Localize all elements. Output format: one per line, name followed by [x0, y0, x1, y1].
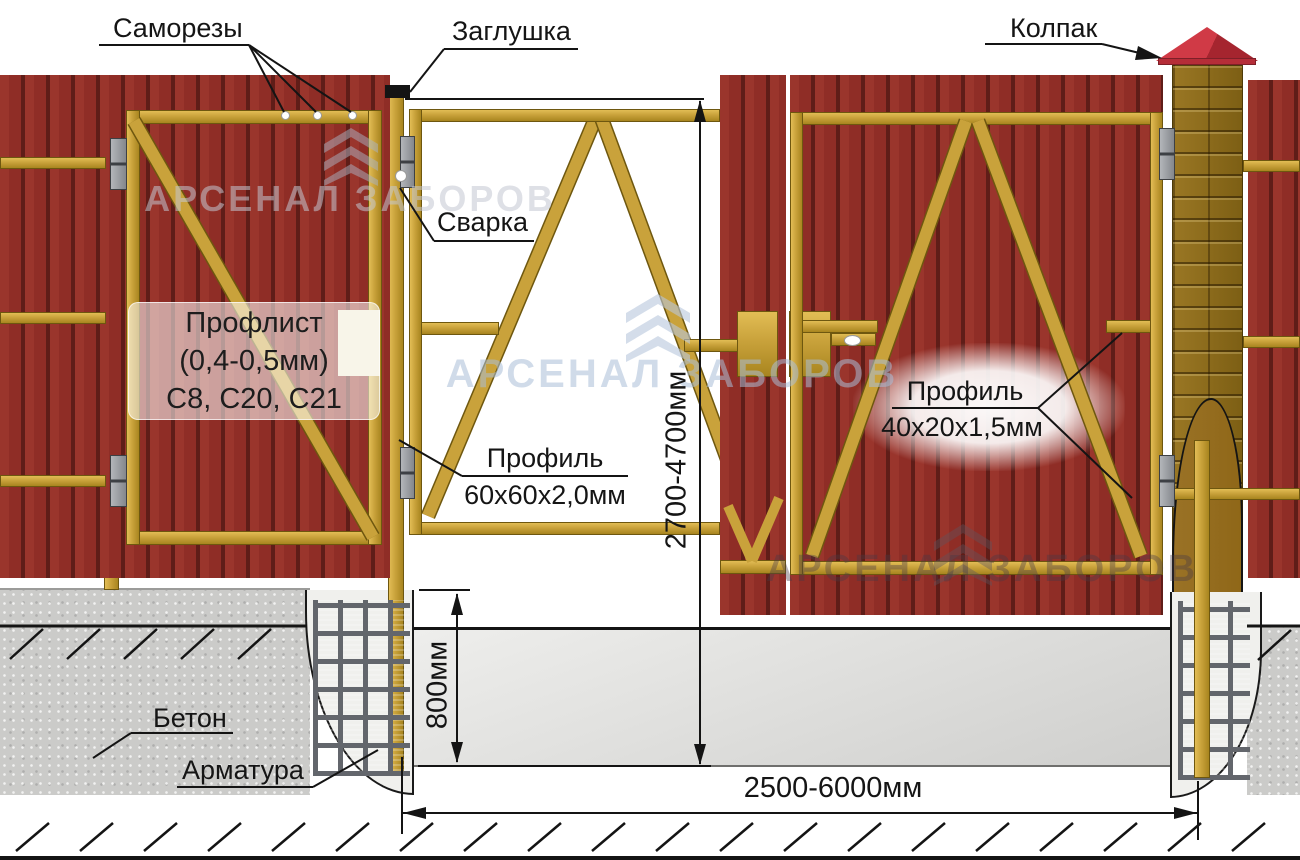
dim-text-span-width: 2500-6000мм: [744, 772, 923, 805]
label-plug: Заглушка: [452, 16, 571, 46]
label-post-profile-title: Профиль: [487, 443, 604, 473]
dim-foundation-depth: [418, 590, 711, 766]
base-hatch: [16, 823, 1265, 851]
fence-gate-installation-diagram: АРСЕНАЛ ЗАБОРОВ АРСЕНАЛ ЗАБОРОВ АРСЕНАЛ …: [0, 0, 1300, 860]
label-frame-profile-title: Профиль: [907, 376, 1024, 406]
label-weld: Сварка: [437, 207, 528, 237]
dim-text-foundation-depth: 800мм: [422, 641, 455, 729]
leader-screws: [99, 45, 351, 112]
label-cap: Колпак: [1010, 13, 1097, 43]
label-screws: Саморезы: [113, 13, 243, 43]
leader-plug: [410, 49, 578, 92]
label-concrete: Бетон: [153, 703, 227, 733]
label-post-profile-size: 60х60х2,0мм: [464, 480, 626, 510]
label-rebar: Арматура: [182, 755, 304, 785]
dim-text-gate-height: 2700-4700мм: [661, 371, 694, 550]
label-frame-profile-size: 40х20х1,5мм: [881, 412, 1043, 442]
leader-cap: [985, 44, 1162, 60]
ground-hatch: [10, 629, 1291, 660]
